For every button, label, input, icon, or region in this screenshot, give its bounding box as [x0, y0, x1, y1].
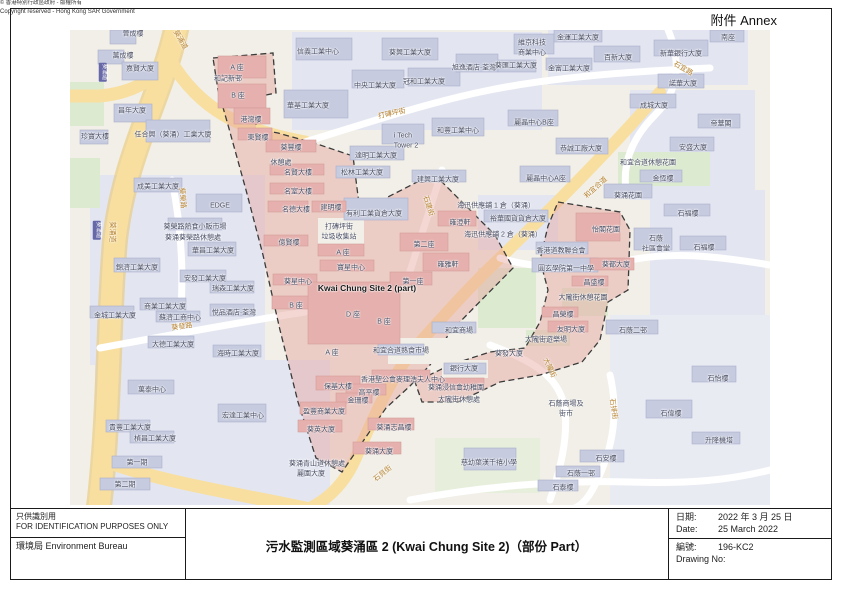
building-label: 香港道教聯合會: [537, 248, 586, 255]
building-label: A 座: [230, 65, 243, 72]
building-label: 昌年大廈: [118, 108, 146, 115]
building-label: 建興工業大廈: [417, 177, 459, 184]
building-label: 和豐工業中心: [437, 128, 479, 135]
building-label: 和宜商場: [445, 328, 473, 335]
building-label: 休憩處: [271, 160, 292, 167]
building-label: 大隴街休憩處: [438, 397, 480, 404]
building-label: 葵涌志昌樓: [377, 425, 412, 432]
building-label: 帝華閣: [711, 121, 732, 128]
building-label: EDGE: [210, 203, 230, 210]
building-label: 蘇濟工商中心: [159, 315, 201, 322]
building-label: 金城工業大廈: [94, 313, 136, 320]
building-label: 商業工業大廈: [144, 304, 186, 311]
drawing-title: 污水監測區域葵涌區 2 (Kwai Chung Site 2)（部份 Part）: [185, 536, 668, 555]
building-label: 達明工業大廈: [355, 153, 397, 160]
building-label: 商業中心: [518, 50, 546, 57]
map-kwai-chung-site-2: 晉成樓萬成樓嘉賢大廈昌年大廈珍寶大樓任合興（葵涌）工業大廈成美工業大廈EDGE葵…: [70, 30, 770, 505]
building-label: 大德工業大廈: [152, 342, 194, 349]
building-label: Tower 2: [394, 143, 419, 150]
building-label: 萬泰中心: [138, 387, 166, 394]
building-label: B 座: [377, 319, 391, 326]
building-label: 維京科技: [518, 40, 546, 47]
building-label: 石偉樓: [661, 411, 682, 418]
building-label: 南座: [721, 35, 735, 42]
building-label: 和宜合道熟食市場: [373, 348, 429, 355]
building-label: 第一期: [127, 460, 148, 467]
building-label: 萬成樓: [113, 53, 134, 60]
building-label: 信義工業中心: [297, 49, 339, 56]
disclaimer-zh: 只供識別用: [16, 512, 168, 522]
building-label: 諾華大廈: [669, 81, 697, 88]
building-label: 成城大廈: [640, 103, 668, 110]
annex-page: 附件 Annex: [0, 0, 841, 589]
building-label: 建明樓: [321, 205, 342, 212]
building-label: 葵涌浸信會幼稚園: [428, 385, 484, 392]
footer-left-divider: [10, 537, 185, 538]
building-label: 葵涌花園: [614, 193, 642, 200]
building-label: 葵星中心: [284, 279, 312, 286]
building-label: 松林工業大廈: [341, 170, 383, 177]
building-label: 港灣樓: [241, 117, 262, 124]
building-label: 石蔭商場及: [549, 401, 584, 408]
building-label: 香港聖公會麥理浩夫人中心: [361, 377, 445, 384]
building-label: 葵榮路熱食小販市場: [164, 224, 227, 231]
building-label: 怡閣花園: [592, 227, 620, 234]
building-label: B 座: [231, 93, 245, 100]
disclaimer-en: FOR IDENTIFICATION PURPOSES ONLY: [16, 522, 168, 532]
building-label: 任合興（葵涌）工業大廈: [135, 132, 212, 139]
building-label: 葵涌青山道休憩處: [289, 461, 345, 468]
footer-vline-right: [668, 508, 669, 580]
building-label: 麗園大廈: [297, 471, 325, 478]
drawing-no-label-zh: 編號:: [676, 541, 710, 553]
building-label: 嘉賢大廈: [126, 66, 154, 73]
building-label: 友明大廈: [557, 327, 585, 334]
building-label: 垃圾收集站: [322, 234, 357, 241]
building-label: 新華銀行大廈: [660, 51, 702, 58]
building-label: 珍寶大樓: [81, 134, 109, 141]
building-label: 保基大樓: [324, 384, 352, 391]
route-badge: 葵涌道: [99, 63, 107, 82]
building-label: 麗晶中心B座: [514, 120, 554, 127]
building-label: 億賢樓: [279, 240, 300, 247]
building-label: 楨昌工業大廈: [134, 436, 176, 443]
building-label: 第二期: [115, 482, 136, 489]
building-label: 第二座: [414, 242, 435, 249]
building-label: 石蔭: [649, 236, 663, 243]
building-label: 雍澄軒: [450, 220, 471, 227]
building-label: 百新大廈: [604, 55, 632, 62]
building-label: D 座: [346, 312, 360, 319]
building-label: 石蔭一邨: [567, 471, 595, 478]
building-label: 雍雅軒: [438, 262, 459, 269]
building-label: 冠和工業大廈: [403, 79, 445, 86]
building-label: 街市: [559, 411, 573, 418]
date-value-en: 25 March 2022: [718, 523, 778, 535]
building-label: 裕華國貨貨倉大廈: [490, 216, 546, 223]
building-label: 悅品酒店·荃灣: [212, 310, 256, 317]
building-label: 晉成樓: [123, 31, 144, 38]
building-label: 石福樓: [694, 245, 715, 252]
building-label: 名室大樓: [284, 189, 312, 196]
building-label: 金運工業大廈: [557, 35, 599, 42]
building-label: 高平樓: [359, 390, 380, 397]
building-label: 盈豐商業大廈: [303, 409, 345, 416]
building-label: 旭逸酒店·荃灣: [452, 65, 496, 72]
building-label: i Tech: [394, 133, 412, 140]
building-label: 海迅供應鋪 1 倉（葵涌）: [457, 203, 535, 210]
date-block: 日期: 2022 年 3 月 25 日 Date: 25 March 2022: [676, 511, 793, 535]
route-badge: 葵涌道: [93, 221, 101, 240]
date-label-zh: 日期:: [676, 511, 710, 523]
building-label: 瑞森工業大廈: [212, 286, 254, 293]
building-label: 貴豐工業大廈: [109, 425, 151, 432]
building-label: 名德大樓: [282, 207, 310, 214]
date-label-en: Date:: [676, 523, 710, 535]
building-label: 有利工業貨倉大廈: [346, 211, 402, 218]
building-label: 打磚坪街: [325, 224, 353, 231]
copyright-zh: © 香港特別行政區政府 - 版權所有: [0, 0, 841, 8]
building-label: 中央工業大廈: [354, 83, 396, 90]
building-label: 葵涌大廈: [365, 449, 393, 456]
building-label: 安盛大廈: [679, 145, 707, 152]
building-label: 石泰樓: [553, 485, 574, 492]
building-label: 石怡樓: [708, 376, 729, 383]
building-label: 石蔭二邨: [619, 328, 647, 335]
building-label: 葵涌葵榮路休憩處: [165, 235, 221, 242]
building-label: 和宜合道休憩花園: [620, 160, 676, 167]
annex-label: 附件 Annex: [711, 10, 777, 29]
building-label: 成美工業大廈: [137, 184, 179, 191]
building-label: 葵豐樓: [281, 145, 302, 152]
building-label: 石福樓: [678, 211, 699, 218]
map-base-layer: [70, 30, 770, 505]
building-label: 安發工業大廈: [184, 276, 226, 283]
building-label: 名賢大樓: [284, 170, 312, 177]
bureau-name: 環境局 Environment Bureau: [16, 541, 128, 552]
identification-disclaimer: 只供識別用 FOR IDENTIFICATION PURPOSES ONLY: [16, 512, 168, 532]
drawing-no-block: 編號: 196-KC2 Drawing No:: [676, 541, 754, 565]
building-label: A 座: [336, 250, 349, 257]
building-label: 慈幼葉漢千禧小學: [461, 460, 517, 467]
building-label: 葵發大廈: [495, 351, 523, 358]
drawing-no-value: 196-KC2: [718, 541, 754, 553]
building-label: 葵興工業大廈: [389, 50, 431, 57]
building-label: 昌盛樓: [584, 280, 605, 287]
building-label: 金恆樓: [653, 176, 674, 183]
building-label: 麗晶中心A座: [526, 176, 566, 183]
building-label: 葵匯工業大廈: [495, 63, 537, 70]
building-label: A 座: [325, 350, 338, 357]
building-label: 葵都大廈: [602, 262, 630, 269]
building-label: 社區會堂: [642, 246, 670, 253]
building-label: B 座: [289, 303, 303, 310]
building-label: 和記新邨: [214, 76, 242, 83]
building-label: 石安樓: [596, 456, 617, 463]
building-label: 大隴街遊樂場: [525, 337, 567, 344]
building-label: 華昌工業大廈: [192, 248, 234, 255]
building-label: 昌榮樓: [553, 312, 574, 319]
date-value-zh: 2022 年 3 月 25 日: [718, 511, 793, 523]
building-label: 銀行大廈: [450, 366, 478, 373]
building-label: 金珊樓: [348, 398, 369, 405]
building-label: 恭誠工廠大廈: [560, 146, 602, 153]
site-label: Kwai Chung Site 2 (part): [318, 284, 416, 293]
building-label: 海時工業大廈: [217, 351, 259, 358]
building-label: 葵英大廈: [307, 427, 335, 434]
building-label: 寶星中心: [337, 265, 365, 272]
building-label: 大隴街休憩花園: [559, 295, 608, 302]
drawing-no-label-en: Drawing No:: [676, 553, 726, 565]
building-label: 升降機塔: [705, 438, 733, 445]
building-label: 海迅供應鋪 2 倉（葵涌）: [464, 232, 542, 239]
footer-divider: [10, 508, 832, 509]
building-label: 金富工業大廈: [548, 66, 590, 73]
building-label: 圓玄學院第一中學: [538, 266, 594, 273]
footer-right-divider: [668, 538, 832, 539]
building-label: 錦濟工業大廈: [116, 265, 158, 272]
building-label: 華基工業大廈: [287, 103, 329, 110]
building-label: 宏達工業中心: [222, 413, 264, 420]
road-label: 葵涌道: [109, 222, 116, 243]
building-label: 東賢樓: [248, 135, 269, 142]
